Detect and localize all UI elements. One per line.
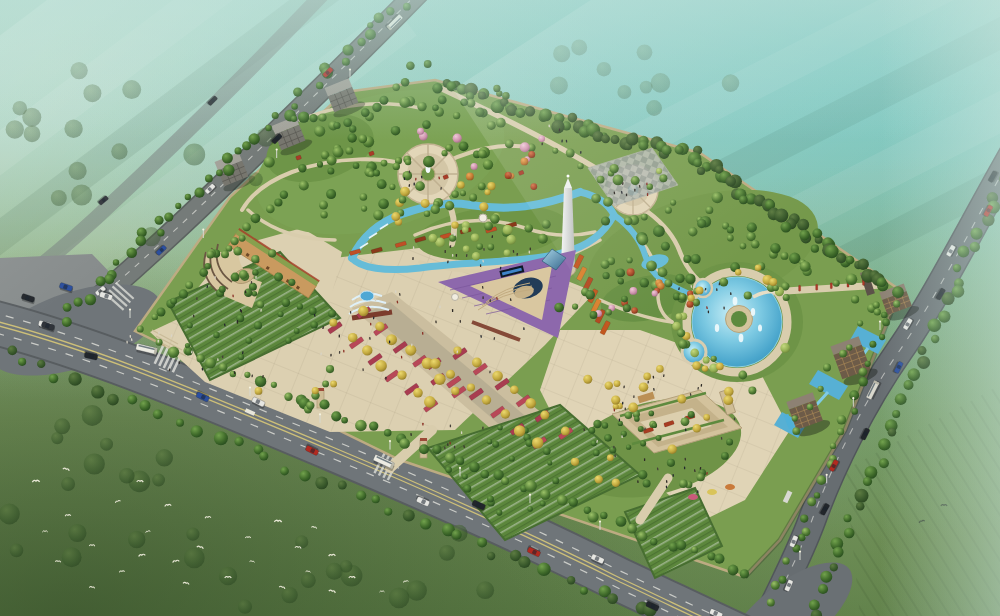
tree (540, 411, 549, 420)
tree (429, 234, 438, 243)
tree (338, 481, 347, 490)
tree (329, 319, 337, 327)
pedestrian (461, 431, 462, 434)
tree (255, 387, 263, 395)
tree (420, 518, 432, 530)
tree (413, 388, 423, 398)
tree (820, 571, 832, 583)
lake-island-green (731, 311, 747, 327)
tree (446, 370, 455, 379)
pedestrian (330, 354, 331, 357)
tree (403, 510, 415, 522)
tree (874, 308, 881, 315)
tree (384, 429, 392, 437)
tree (668, 445, 677, 454)
tree (54, 418, 70, 434)
tree (252, 291, 257, 296)
tree (509, 456, 515, 462)
pedestrian (482, 426, 483, 429)
tree (68, 524, 86, 542)
tree (514, 425, 525, 436)
tree (600, 512, 607, 519)
tree (301, 573, 316, 588)
pedestrian (389, 341, 390, 344)
tree (152, 314, 158, 320)
light-pole-lamp (319, 413, 321, 415)
pedestrian (130, 335, 131, 338)
tree (100, 438, 113, 451)
tree (679, 479, 688, 488)
tree (503, 225, 513, 235)
pedestrian (613, 446, 614, 449)
tree (537, 562, 551, 576)
pedestrian (529, 251, 530, 254)
pedestrian (483, 248, 484, 251)
tree (157, 229, 164, 236)
tree (518, 556, 530, 568)
tree (233, 247, 242, 256)
fountain-jet (751, 308, 755, 316)
tree (540, 489, 550, 499)
tree (274, 272, 283, 281)
tree (492, 371, 503, 382)
pedestrian (350, 311, 351, 314)
tree (525, 480, 537, 492)
tree (214, 431, 228, 445)
tree (532, 437, 543, 448)
tree (571, 458, 579, 466)
tree (526, 439, 534, 447)
tree (527, 506, 532, 511)
tree (244, 372, 250, 378)
aerial-park-rendering (0, 0, 1000, 616)
tree (844, 514, 852, 522)
tree (627, 524, 637, 534)
tree (688, 411, 695, 418)
tree (156, 449, 173, 466)
tree (800, 261, 811, 272)
tree (865, 466, 878, 479)
tree (439, 545, 455, 561)
tree (839, 350, 847, 358)
tree (846, 256, 855, 265)
tree (487, 552, 495, 560)
tree (271, 382, 277, 388)
tree (298, 164, 306, 172)
tree (442, 150, 448, 156)
tree (96, 276, 106, 286)
pedestrian (583, 428, 584, 431)
tree (415, 181, 425, 191)
tree (625, 411, 633, 419)
tree (478, 149, 487, 158)
tree (869, 341, 876, 348)
pedestrian (445, 250, 446, 253)
pedestrian (716, 288, 717, 291)
tree (405, 345, 416, 356)
tree (231, 273, 240, 282)
tree (789, 253, 800, 264)
tree (107, 394, 119, 406)
tree (8, 346, 18, 356)
tree (341, 417, 348, 424)
tree (238, 600, 252, 614)
tree (744, 291, 752, 299)
tree (501, 409, 510, 418)
tree (68, 372, 81, 385)
tree (693, 424, 702, 433)
walkway-banners-strip (816, 284, 818, 290)
tree (688, 295, 695, 302)
tree (783, 294, 790, 301)
tree (433, 445, 442, 454)
pedestrian (411, 343, 412, 346)
tree (716, 363, 724, 371)
tree (471, 163, 478, 170)
pedestrian (217, 358, 218, 361)
tree (524, 224, 533, 233)
tree (445, 453, 456, 464)
tree (770, 243, 780, 253)
tree (510, 385, 519, 394)
pedestrian (633, 395, 634, 398)
tree (816, 475, 826, 485)
tree (583, 375, 592, 384)
tree (792, 415, 798, 421)
flower-pot (725, 484, 735, 490)
pedestrian (734, 417, 735, 420)
tree (504, 250, 511, 257)
tree (593, 420, 601, 428)
tree (153, 409, 163, 419)
tree (152, 474, 165, 487)
tree (294, 328, 300, 334)
fountain-jet (739, 334, 744, 342)
tree (460, 190, 466, 196)
tree (723, 395, 733, 405)
tree (807, 404, 814, 411)
tree (451, 191, 458, 198)
tree (10, 544, 24, 558)
pedestrian (439, 305, 440, 308)
tree (557, 495, 568, 506)
light-pole-lamp (852, 397, 854, 399)
fountain-jet (715, 324, 719, 332)
light-pole-lamp (826, 474, 828, 476)
tree (487, 495, 494, 502)
tree (572, 304, 578, 310)
pedestrian (480, 264, 481, 267)
tree (299, 470, 310, 481)
tree (185, 343, 190, 348)
tree (687, 301, 694, 308)
tree (844, 528, 855, 539)
tree (728, 565, 739, 576)
tree (487, 182, 495, 190)
tree (779, 576, 787, 584)
tree (62, 317, 72, 327)
tree (373, 170, 380, 177)
tree (580, 587, 588, 595)
tree (812, 229, 822, 239)
pedestrian (339, 351, 340, 354)
pedestrian (705, 290, 706, 293)
tree (375, 322, 384, 331)
tree (873, 302, 880, 309)
tree (656, 365, 664, 373)
tree (326, 189, 336, 199)
tree (462, 474, 468, 480)
tree (656, 435, 662, 441)
tree (37, 360, 45, 368)
tree (823, 363, 831, 371)
tree (781, 252, 789, 260)
tree (863, 477, 872, 486)
tree (320, 211, 327, 218)
tree (649, 411, 655, 417)
pedestrian (450, 425, 451, 428)
tree (274, 198, 282, 206)
tree (837, 415, 847, 425)
tree (652, 423, 657, 428)
tree (405, 159, 411, 165)
tree (378, 199, 389, 210)
pedestrian (395, 290, 396, 293)
tree (466, 173, 474, 181)
tree (400, 187, 410, 197)
tree (424, 396, 436, 408)
tree (281, 587, 297, 603)
tree (851, 408, 858, 415)
tree (62, 547, 82, 567)
tree (538, 234, 548, 244)
tree (140, 400, 151, 411)
tree (234, 437, 243, 446)
pedestrian (385, 377, 386, 380)
tree (393, 163, 400, 170)
tree (714, 554, 724, 564)
tree (63, 303, 72, 312)
tree (384, 508, 392, 516)
tree (857, 320, 863, 326)
tree (676, 313, 683, 320)
tree (697, 473, 705, 481)
tree (667, 459, 675, 467)
tree (191, 425, 203, 437)
light-pole-lamp (276, 148, 278, 150)
tree (61, 477, 75, 491)
light-pole-lamp (249, 386, 251, 388)
tree (837, 428, 844, 435)
pedestrian (237, 321, 239, 324)
tree (472, 358, 482, 368)
pedestrian (126, 341, 127, 344)
tree (711, 356, 717, 362)
tree (638, 426, 644, 432)
pedestrian (232, 294, 233, 297)
tree (540, 501, 546, 507)
pedestrian (460, 320, 461, 323)
tree (284, 393, 292, 401)
tree (127, 395, 137, 405)
tree (476, 243, 483, 250)
tree (858, 259, 869, 270)
tree (691, 546, 698, 553)
tree (137, 326, 144, 333)
tree (858, 377, 868, 387)
tree (589, 427, 596, 434)
pedestrian (730, 292, 731, 295)
tree (213, 332, 219, 338)
pedestrian (414, 183, 415, 186)
tree (677, 329, 685, 337)
tree (288, 279, 295, 286)
gate-pylon-cap (420, 438, 427, 441)
tree (702, 365, 708, 371)
tree (703, 414, 710, 421)
pedestrian (622, 402, 623, 405)
tree (836, 253, 846, 263)
tree (462, 227, 469, 234)
tree (452, 530, 462, 540)
tree (327, 168, 334, 175)
tree (799, 230, 810, 241)
tree (328, 310, 336, 318)
pedestrian (523, 327, 524, 330)
tree (814, 492, 820, 498)
tree (187, 323, 193, 329)
tree (299, 181, 309, 191)
tree (830, 443, 836, 449)
tree (206, 250, 214, 258)
fountain-jet (758, 324, 762, 331)
tree (543, 447, 551, 455)
tree (449, 234, 456, 241)
flower-pot (707, 489, 717, 495)
tree (846, 344, 852, 350)
tree (614, 380, 621, 387)
pedestrian (444, 446, 445, 449)
tree (170, 298, 177, 305)
pedestrian (697, 490, 698, 493)
tree (650, 538, 657, 545)
tree (748, 387, 756, 395)
tree (353, 162, 360, 169)
tree (251, 213, 261, 223)
tree (445, 144, 453, 152)
tree (525, 398, 536, 409)
tree (297, 303, 303, 309)
pedestrian (625, 407, 626, 410)
tree (609, 446, 616, 453)
tree (360, 193, 368, 201)
tree (168, 347, 179, 358)
walkway-banners-strip (799, 285, 801, 291)
tree (285, 337, 291, 343)
round-pergola (452, 294, 459, 301)
tree (399, 438, 410, 449)
tree (800, 515, 808, 523)
tree (399, 196, 407, 204)
tree (84, 453, 105, 474)
pedestrian (685, 428, 686, 431)
tree (755, 265, 762, 272)
tree (119, 468, 135, 484)
right-haze (880, 0, 1000, 616)
tree (554, 303, 564, 313)
pedestrian (412, 257, 413, 260)
tree (317, 161, 323, 167)
pedestrian (370, 323, 371, 326)
tree (611, 395, 620, 404)
pedestrian (614, 454, 616, 457)
tree (678, 340, 687, 349)
tree (612, 479, 620, 487)
tree (719, 278, 728, 287)
rendering-canvas (0, 0, 1000, 616)
tree (607, 454, 614, 461)
tree (361, 206, 367, 212)
tree (389, 184, 395, 190)
pedestrian (214, 276, 215, 279)
tree (476, 581, 494, 599)
tree (457, 181, 465, 189)
pedestrian (158, 331, 159, 334)
tree (185, 281, 193, 289)
tree (483, 159, 493, 169)
light-pole-lamp (599, 520, 601, 522)
pedestrian (179, 361, 180, 364)
tree (809, 600, 820, 611)
tree (346, 147, 354, 155)
tree (255, 376, 266, 387)
tree (451, 387, 459, 395)
tree (128, 531, 145, 548)
tree (851, 295, 859, 303)
tree (249, 172, 263, 186)
tree (309, 307, 317, 315)
tree (239, 235, 246, 242)
pedestrian (422, 423, 423, 426)
tree (830, 563, 838, 571)
tree (386, 334, 397, 345)
tree (430, 358, 441, 369)
tree (319, 201, 328, 210)
tree (626, 445, 631, 450)
tree (51, 432, 63, 444)
pedestrian (482, 296, 483, 299)
tree (634, 416, 640, 422)
tree (616, 516, 627, 527)
tree (506, 235, 516, 245)
tree (721, 452, 729, 460)
pedestrian (672, 474, 673, 477)
pedestrian (530, 247, 531, 250)
tree (434, 373, 446, 385)
pedestrian (708, 310, 709, 313)
tree (312, 387, 319, 394)
tree (637, 531, 647, 541)
tree (807, 497, 816, 506)
pedestrian (362, 368, 363, 371)
tree (480, 470, 489, 479)
tree (282, 298, 291, 307)
tree (681, 417, 690, 426)
tree (471, 234, 479, 242)
tree (389, 588, 410, 609)
pedestrian (404, 177, 406, 180)
pedestrian (339, 335, 340, 338)
